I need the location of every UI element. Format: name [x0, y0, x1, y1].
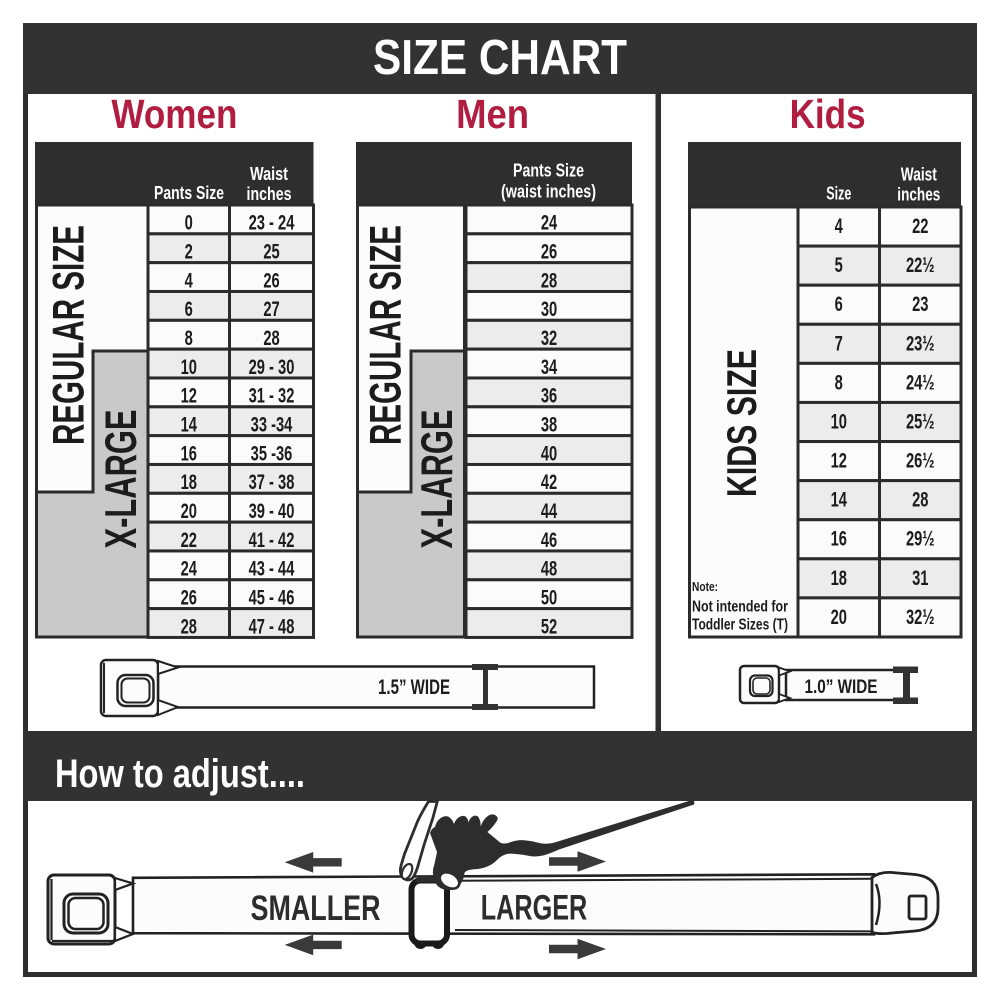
svg-text:37 - 38: 37 - 38	[249, 471, 295, 494]
svg-text:30: 30	[541, 298, 557, 321]
svg-text:32½: 32½	[906, 605, 935, 628]
svg-text:40: 40	[541, 442, 557, 465]
svg-text:26: 26	[263, 269, 279, 292]
svg-text:20: 20	[831, 605, 847, 628]
svg-text:28: 28	[263, 326, 279, 349]
svg-text:Size: Size	[826, 183, 851, 204]
svg-text:18: 18	[181, 471, 197, 494]
svg-text:Not intended for: Not intended for	[692, 599, 788, 616]
svg-text:REGULAR SIZE: REGULAR SIZE	[45, 225, 94, 445]
svg-text:10: 10	[831, 410, 847, 433]
svg-text:36: 36	[541, 384, 557, 407]
svg-text:20: 20	[181, 499, 197, 522]
svg-text:22: 22	[181, 528, 197, 551]
svg-text:6: 6	[185, 298, 193, 321]
svg-text:23 - 24: 23 - 24	[249, 211, 295, 234]
svg-text:8: 8	[835, 371, 843, 394]
svg-text:28: 28	[912, 488, 928, 511]
svg-text:1.5” WIDE: 1.5” WIDE	[378, 676, 450, 699]
svg-text:14: 14	[831, 488, 847, 511]
svg-text:inches: inches	[247, 183, 292, 204]
svg-text:25: 25	[263, 240, 279, 263]
svg-text:26½: 26½	[906, 449, 935, 472]
svg-text:inches: inches	[897, 184, 940, 205]
svg-text:22½: 22½	[906, 254, 935, 277]
svg-text:24: 24	[181, 557, 197, 580]
svg-text:Kids: Kids	[790, 91, 866, 137]
svg-text:26: 26	[181, 586, 197, 609]
svg-text:KIDS SIZE: KIDS SIZE	[718, 349, 765, 497]
svg-text:42: 42	[541, 471, 557, 494]
svg-text:8: 8	[185, 326, 193, 349]
svg-text:43 - 44: 43 - 44	[249, 557, 295, 580]
svg-text:27: 27	[263, 298, 279, 321]
svg-text:14: 14	[181, 413, 197, 436]
svg-text:12: 12	[181, 384, 197, 407]
svg-text:26: 26	[541, 240, 557, 263]
svg-text:12: 12	[831, 449, 847, 472]
svg-text:29 - 30: 29 - 30	[249, 355, 295, 378]
svg-text:10: 10	[181, 355, 197, 378]
svg-text:23½: 23½	[906, 332, 935, 355]
svg-text:0: 0	[185, 211, 193, 234]
svg-text:5: 5	[835, 254, 843, 277]
svg-text:22: 22	[912, 214, 928, 237]
svg-text:39 - 40: 39 - 40	[249, 499, 295, 522]
svg-text:X-LARGE: X-LARGE	[97, 410, 146, 549]
svg-text:46: 46	[541, 528, 557, 551]
svg-text:LARGER: LARGER	[481, 889, 588, 928]
svg-text:32: 32	[541, 326, 557, 349]
svg-text:How to adjust....: How to adjust....	[55, 752, 305, 796]
svg-text:34: 34	[541, 355, 557, 378]
svg-text:SMALLER: SMALLER	[251, 889, 381, 928]
svg-text:SIZE CHART: SIZE CHART	[373, 31, 627, 85]
svg-text:29½: 29½	[906, 527, 935, 550]
svg-text:Pants Size: Pants Size	[513, 160, 584, 181]
svg-text:2: 2	[185, 240, 193, 263]
svg-text:X-LARGE: X-LARGE	[413, 410, 462, 549]
svg-text:Toddler Sizes (T): Toddler Sizes (T)	[692, 617, 788, 634]
svg-text:18: 18	[831, 566, 847, 589]
svg-text:50: 50	[541, 586, 557, 609]
svg-text:24: 24	[541, 211, 557, 234]
svg-text:Women: Women	[111, 91, 237, 137]
svg-text:25½: 25½	[906, 410, 935, 433]
svg-text:Waist: Waist	[901, 164, 937, 185]
svg-text:44: 44	[541, 499, 557, 522]
svg-text:28: 28	[541, 269, 557, 292]
svg-text:7: 7	[835, 332, 843, 355]
svg-text:Pants Size: Pants Size	[154, 182, 224, 203]
svg-text:35 -36: 35 -36	[251, 442, 293, 465]
svg-text:24½: 24½	[906, 371, 935, 394]
svg-text:31: 31	[912, 566, 928, 589]
svg-text:1.0” WIDE: 1.0” WIDE	[805, 677, 878, 698]
svg-text:Waist: Waist	[250, 163, 288, 184]
svg-text:31 - 32: 31 - 32	[249, 384, 295, 407]
svg-text:Note:: Note:	[692, 579, 718, 594]
svg-text:45 - 46: 45 - 46	[249, 586, 295, 609]
svg-text:41 - 42: 41 - 42	[249, 528, 295, 551]
svg-text:Men: Men	[456, 91, 529, 137]
svg-text:REGULAR SIZE: REGULAR SIZE	[362, 225, 411, 445]
svg-text:6: 6	[835, 293, 843, 316]
svg-text:4: 4	[835, 214, 843, 237]
svg-text:(waist inches): (waist inches)	[501, 181, 596, 202]
svg-text:16: 16	[181, 442, 197, 465]
svg-text:38: 38	[541, 413, 557, 436]
svg-text:4: 4	[185, 269, 193, 292]
svg-text:47 - 48: 47 - 48	[249, 615, 295, 638]
svg-text:33 -34: 33 -34	[251, 413, 293, 436]
svg-text:52: 52	[541, 615, 557, 638]
svg-text:48: 48	[541, 557, 557, 580]
svg-text:16: 16	[831, 527, 847, 550]
svg-text:23: 23	[912, 293, 928, 316]
svg-text:28: 28	[181, 615, 197, 638]
